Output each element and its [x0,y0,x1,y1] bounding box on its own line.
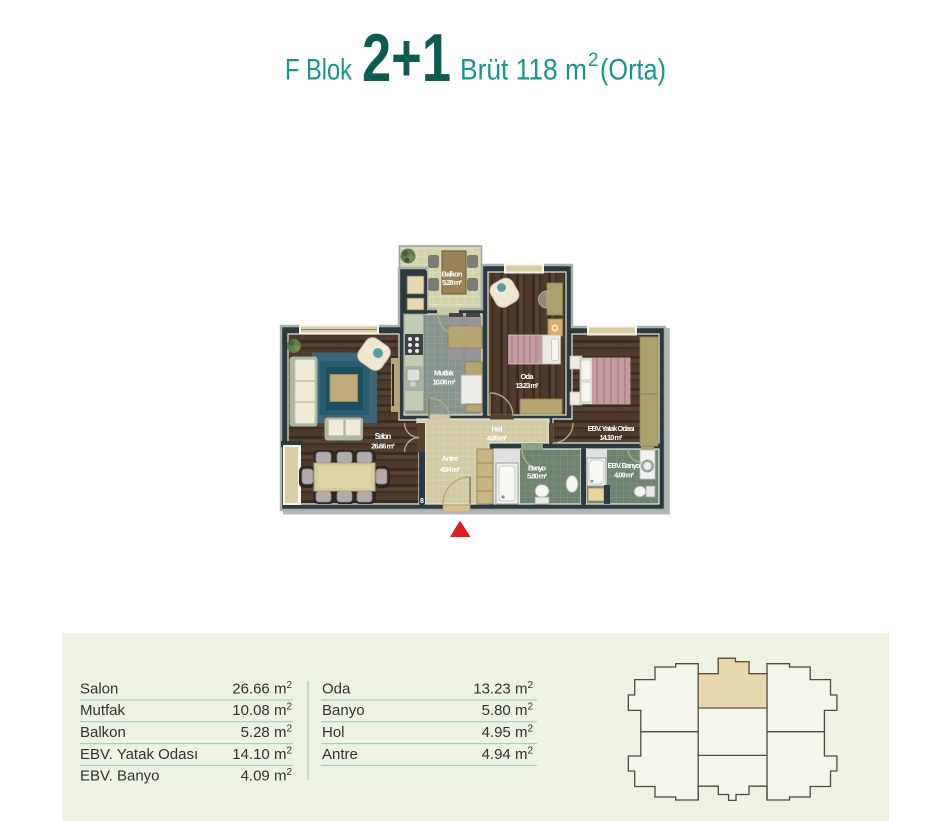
svg-text:EBV. Banyo: EBV. Banyo [608,461,641,470]
svg-text:Salon: Salon [375,432,392,441]
svg-text:4.95 m²: 4.95 m² [487,434,508,443]
svg-text:Balkon: Balkon [80,724,126,741]
svg-text:14.10 m²: 14.10 m² [600,433,624,442]
svg-text:8: 8 [420,498,424,505]
svg-text:F Blok: F Blok [285,54,353,87]
svg-text:2+1: 2+1 [362,20,451,96]
svg-text:EBV. Yatak Odası: EBV. Yatak Odası [80,746,198,763]
svg-text:14.10 m2: 14.10 m2 [232,745,292,763]
svg-text:Mutfak: Mutfak [434,369,455,378]
svg-text:4.09 m²: 4.09 m² [614,471,635,480]
svg-text:4.94 m2: 4.94 m2 [482,745,534,763]
svg-text:Mutfak: Mutfak [80,702,126,719]
svg-text:26.66 m2: 26.66 m2 [232,680,292,698]
svg-text:EBV. Banyo: EBV. Banyo [80,768,160,785]
svg-text:Antre: Antre [442,454,459,463]
svg-text:13.23 m²: 13.23 m² [516,381,540,390]
svg-text:Oda: Oda [521,372,535,381]
svg-text:EBV. Yatak Odası: EBV. Yatak Odası [588,424,635,433]
svg-text:Oda: Oda [322,680,351,697]
svg-text:Banyo: Banyo [322,702,365,719]
svg-text:Antre: Antre [322,746,358,763]
svg-text:Hol: Hol [322,724,345,741]
svg-text:10.08 m2: 10.08 m2 [232,702,292,720]
svg-text:10.08 m²: 10.08 m² [433,378,457,387]
svg-text:4.09 m2: 4.09 m2 [241,767,293,785]
svg-text:Brüt 118 m: Brüt 118 m [460,54,587,87]
svg-text:4.94 m²: 4.94 m² [440,465,461,474]
svg-text:4.95 m2: 4.95 m2 [482,724,534,742]
svg-text:26.66 m²: 26.66 m² [371,442,395,451]
svg-text:(Orta): (Orta) [600,54,666,87]
svg-text:2: 2 [588,50,599,71]
svg-text:Salon: Salon [80,680,118,697]
svg-text:5.28 m2: 5.28 m2 [241,724,293,742]
svg-text:5.28 m²: 5.28 m² [442,278,463,287]
svg-text:Hol: Hol [492,425,503,434]
svg-text:5.80 m²: 5.80 m² [527,472,548,481]
svg-text:13.23 m2: 13.23 m2 [473,680,533,698]
svg-text:5.80 m2: 5.80 m2 [482,702,534,720]
